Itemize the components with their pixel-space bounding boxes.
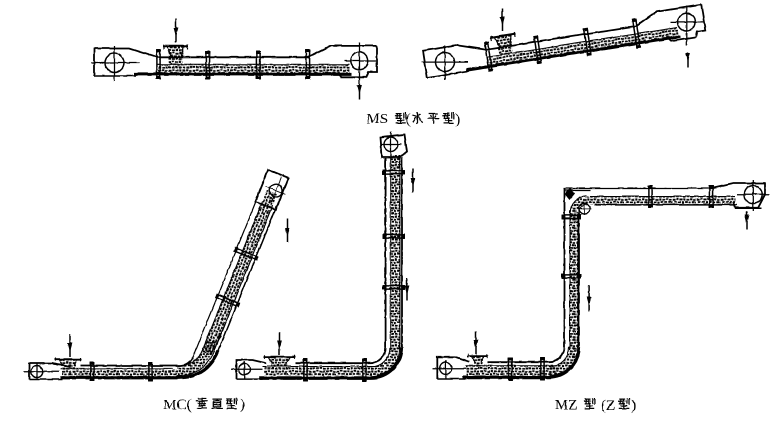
svg-text:MZ: MZ [555, 397, 578, 413]
svg-text:): ) [455, 112, 460, 128]
svg-text:): ) [240, 397, 245, 413]
svg-text:MS: MS [366, 111, 388, 127]
svg-text:(: ( [405, 112, 410, 128]
svg-text:): ) [631, 398, 636, 414]
svg-text:MC(: MC( [163, 397, 191, 413]
svg-text:(Z: (Z [601, 398, 615, 414]
